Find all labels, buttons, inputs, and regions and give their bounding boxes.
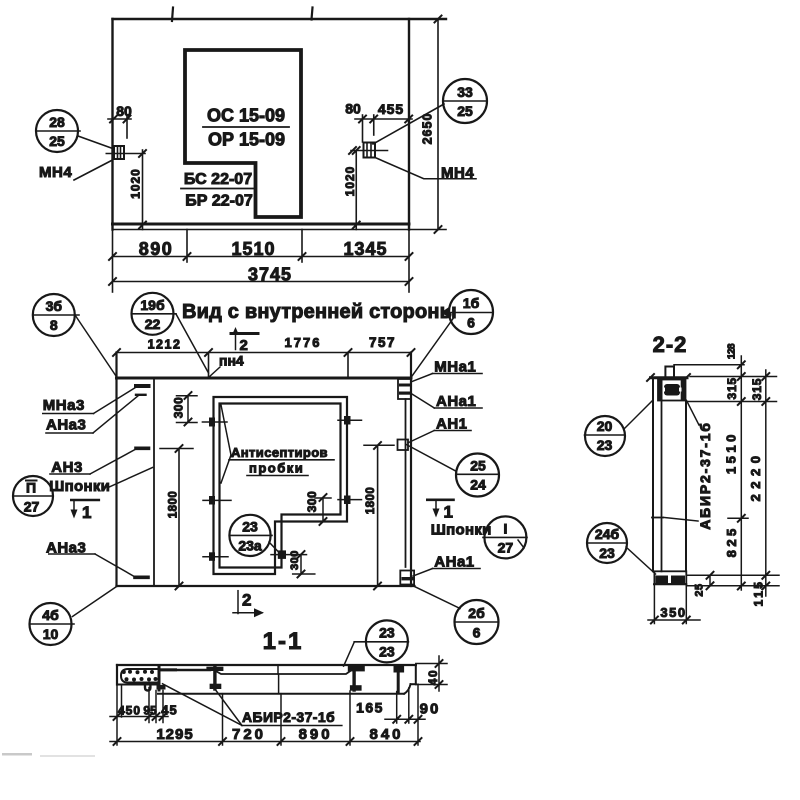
svg-text:20: 20: [597, 418, 613, 434]
svg-text:1212: 1212: [148, 338, 182, 352]
svg-text:2220: 2220: [748, 451, 763, 502]
svg-text:23: 23: [242, 519, 258, 535]
svg-text:6: 6: [473, 625, 481, 641]
svg-text:8: 8: [50, 317, 58, 333]
svg-text:350: 350: [660, 605, 686, 620]
svg-text:АБИР2-37-1б: АБИР2-37-1б: [242, 709, 335, 725]
svg-text:33: 33: [457, 84, 473, 100]
svg-text:3б: 3б: [46, 298, 63, 314]
svg-text:80: 80: [345, 101, 361, 117]
svg-text:1776: 1776: [285, 335, 322, 350]
svg-text:3745: 3745: [248, 265, 292, 285]
svg-text:I: I: [503, 521, 507, 537]
svg-text:840: 840: [369, 726, 403, 743]
svg-text:Шпонки: Шпонки: [431, 522, 492, 539]
svg-text:315: 315: [750, 378, 764, 400]
svg-text:6: 6: [467, 315, 475, 331]
svg-text:ОР 15-09: ОР 15-09: [208, 130, 285, 150]
svg-text:115: 115: [752, 580, 766, 607]
svg-text:Шпонки: Шпонки: [49, 478, 110, 495]
svg-text:1510: 1510: [231, 239, 275, 259]
svg-text:пробки: пробки: [249, 461, 304, 476]
svg-text:720: 720: [232, 726, 266, 743]
svg-text:2б: 2б: [468, 605, 485, 621]
svg-text:2: 2: [240, 337, 248, 354]
svg-text:24б: 24б: [595, 526, 620, 542]
svg-text:80: 80: [116, 103, 132, 119]
svg-text:1510: 1510: [724, 431, 739, 474]
svg-text:23: 23: [599, 545, 615, 561]
svg-text:23: 23: [379, 625, 395, 641]
svg-text:1345: 1345: [343, 239, 387, 259]
svg-text:1-1: 1-1: [263, 628, 304, 655]
svg-text:27: 27: [498, 540, 514, 556]
svg-text:1800: 1800: [365, 487, 377, 515]
svg-text:23: 23: [379, 644, 395, 660]
svg-text:28: 28: [49, 114, 65, 130]
svg-text:45: 45: [161, 703, 177, 718]
svg-text:300: 300: [172, 397, 186, 419]
svg-text:24: 24: [470, 477, 486, 493]
svg-text:128: 128: [727, 343, 738, 359]
svg-text:1: 1: [82, 503, 91, 522]
svg-text:пн4: пн4: [219, 353, 244, 369]
svg-text:МН4: МН4: [39, 164, 72, 181]
svg-text:1020: 1020: [343, 166, 357, 197]
svg-text:2650: 2650: [421, 113, 435, 145]
svg-text:1800: 1800: [168, 491, 180, 519]
svg-text:23: 23: [597, 437, 613, 453]
svg-text:1б: 1б: [463, 295, 480, 311]
svg-text:890: 890: [139, 239, 174, 259]
svg-text:АНа3: АНа3: [46, 417, 86, 434]
svg-text:25: 25: [470, 458, 486, 474]
svg-text:25: 25: [49, 133, 65, 149]
svg-text:95: 95: [143, 704, 157, 718]
svg-text:450: 450: [118, 704, 141, 718]
svg-text:300: 300: [289, 550, 301, 570]
svg-text:890: 890: [299, 726, 333, 743]
svg-text:757: 757: [369, 335, 396, 350]
svg-text:19б: 19б: [140, 297, 165, 313]
svg-text:Вид с внутренней стороны: Вид с внутренней стороны: [182, 301, 457, 323]
svg-text:2: 2: [242, 591, 251, 610]
svg-text:40: 40: [426, 669, 440, 685]
svg-text:БР 22-07: БР 22-07: [185, 193, 253, 210]
svg-text:23а: 23а: [238, 538, 262, 554]
svg-text:БС 22-07: БС 22-07: [184, 171, 252, 188]
svg-text:4б: 4б: [42, 607, 59, 623]
svg-text:300: 300: [305, 491, 319, 513]
svg-text:Антисептиров: Антисептиров: [231, 445, 328, 460]
svg-text:22: 22: [145, 316, 161, 332]
svg-text:165: 165: [356, 700, 384, 716]
svg-text:25: 25: [694, 583, 706, 596]
svg-text:МНа3: МНа3: [43, 397, 85, 414]
svg-text:315: 315: [725, 377, 739, 399]
svg-text:1020: 1020: [129, 168, 143, 199]
svg-text:АБИР2-37-1б: АБИР2-37-1б: [697, 421, 713, 530]
svg-text:П: П: [26, 480, 36, 496]
svg-text:2-2: 2-2: [653, 332, 688, 357]
svg-text:1295: 1295: [156, 726, 193, 743]
svg-text:455: 455: [378, 101, 404, 117]
svg-text:ОС 15-09: ОС 15-09: [207, 106, 285, 126]
svg-text:25: 25: [457, 103, 473, 119]
svg-text:27: 27: [24, 499, 40, 515]
svg-text:10: 10: [43, 626, 59, 642]
svg-text:825: 825: [724, 525, 739, 557]
svg-text:1: 1: [444, 503, 453, 522]
svg-text:90: 90: [420, 701, 441, 718]
